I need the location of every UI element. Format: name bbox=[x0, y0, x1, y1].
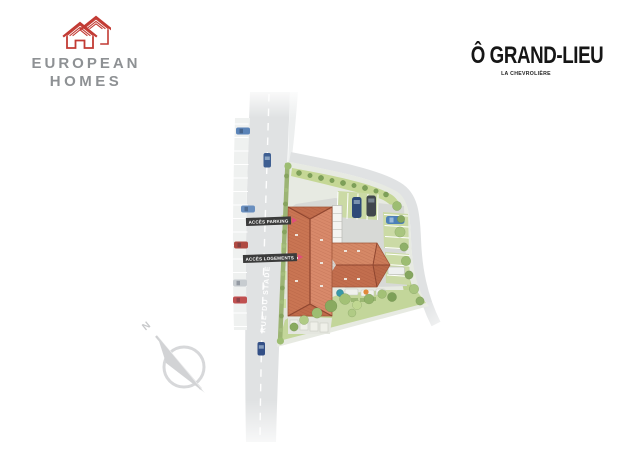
site-plan-page: EUROPEAN HOMES Ô GRAND-LIEU LA CHEVROLIÈ… bbox=[0, 0, 640, 470]
acces-parking-arrow-icon bbox=[292, 217, 297, 223]
road-fade-bottom bbox=[225, 400, 305, 455]
compass-rose bbox=[156, 335, 205, 393]
road-fade-southeast bbox=[424, 302, 470, 352]
road-fade-top bbox=[228, 86, 306, 118]
acces-parking-text: ACCÈS PARKING bbox=[246, 216, 291, 226]
carport bbox=[333, 206, 343, 246]
site-plan-graphic bbox=[0, 0, 640, 470]
acces-logements-arrow-icon bbox=[297, 254, 302, 260]
